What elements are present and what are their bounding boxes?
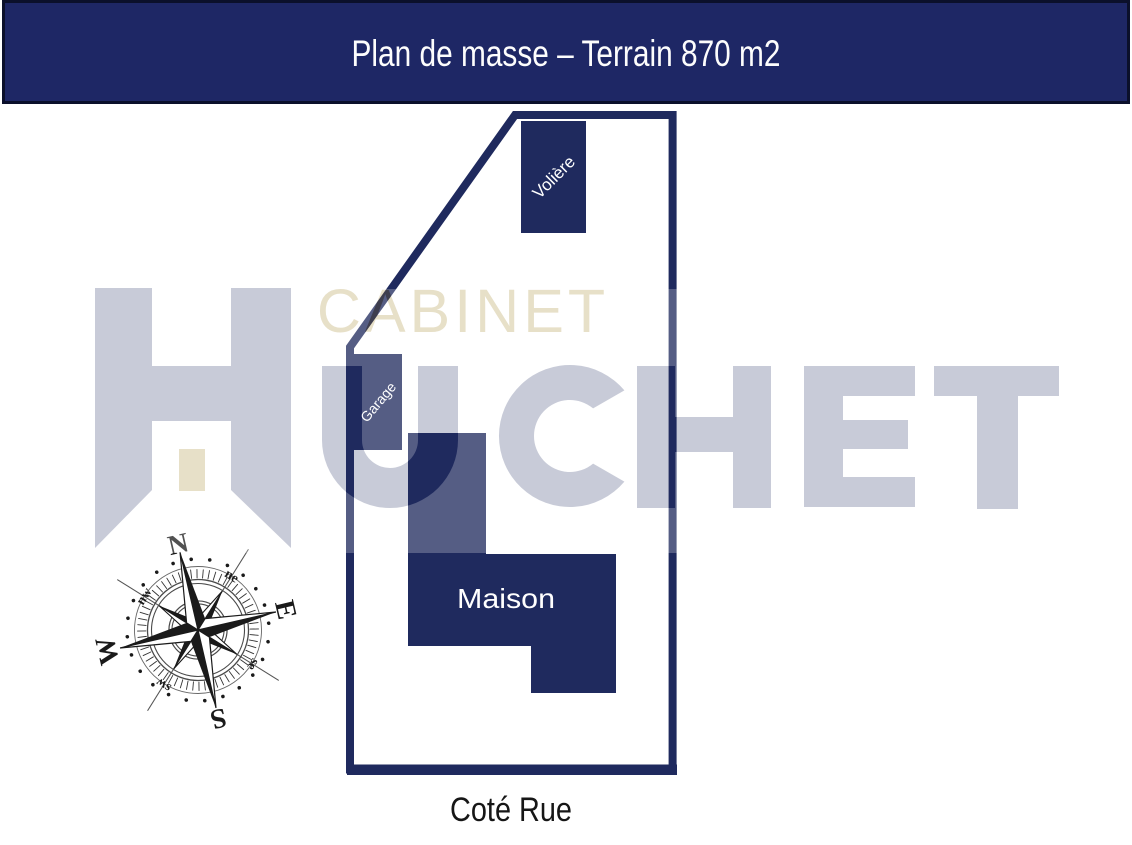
svg-text:sw: sw — [153, 675, 174, 696]
svg-text:CABINET: CABINET — [317, 277, 609, 345]
svg-text:Plan de masse – Terrain 870 m2: Plan de masse – Terrain 870 m2 — [352, 33, 781, 74]
svg-text:W: W — [90, 634, 127, 668]
svg-text:Coté Rue: Coté Rue — [450, 791, 572, 829]
svg-text:Maison: Maison — [457, 583, 555, 614]
svg-text:E: E — [268, 597, 302, 622]
svg-text:S: S — [207, 701, 229, 735]
svg-text:ne: ne — [222, 566, 241, 586]
